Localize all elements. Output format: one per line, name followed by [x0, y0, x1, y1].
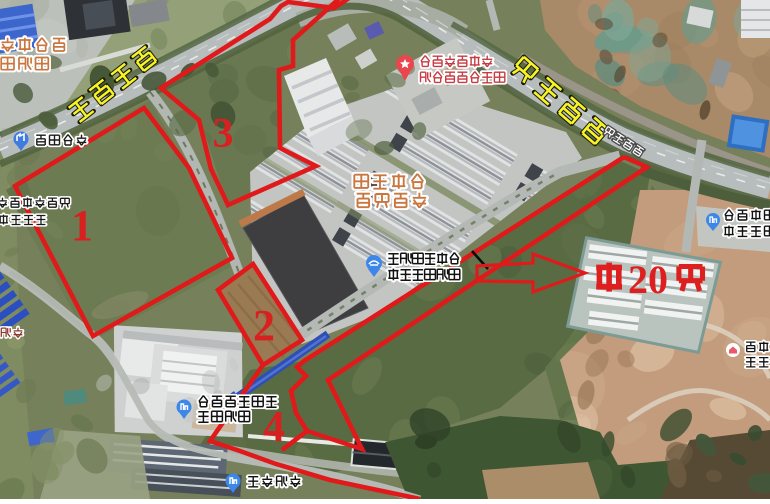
svg-text:1: 1 — [71, 201, 93, 250]
svg-text:3: 3 — [213, 111, 234, 157]
svg-text:20: 20 — [628, 257, 668, 302]
svg-text:2: 2 — [253, 301, 275, 350]
